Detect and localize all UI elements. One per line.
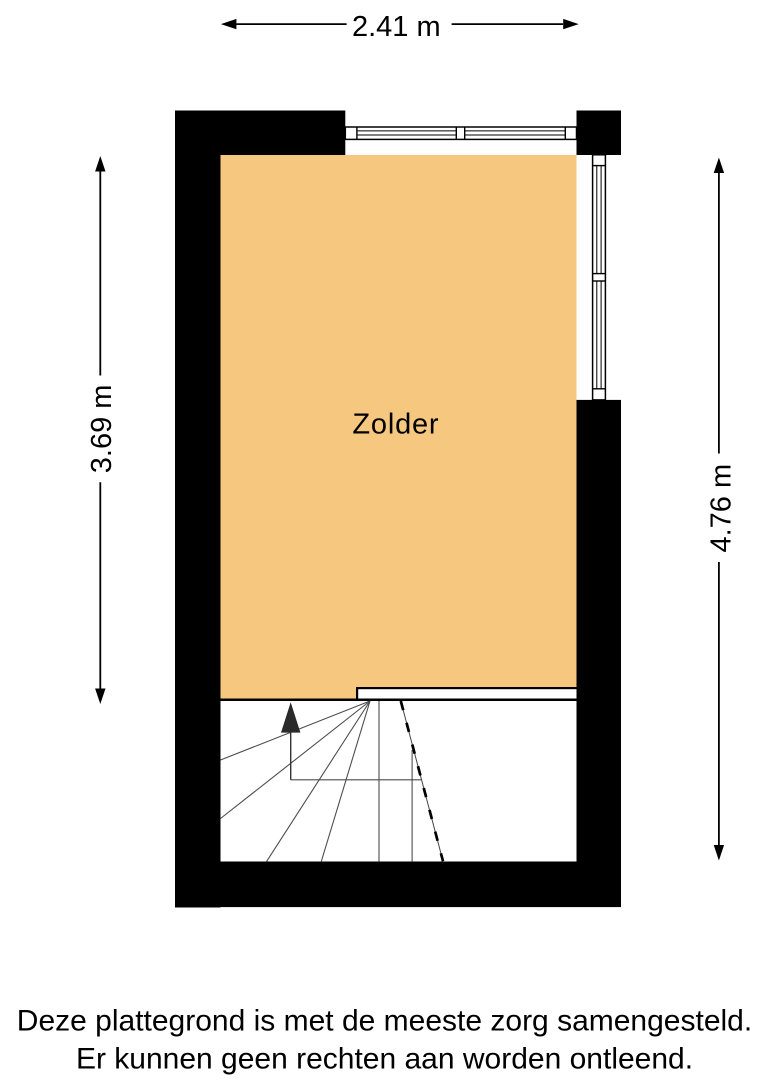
svg-text:Zolder: Zolder [352, 408, 439, 440]
svg-text:4.76 m: 4.76 m [705, 464, 737, 553]
svg-text:Deze plattegrond is met de mee: Deze plattegrond is met de meeste zorg s… [17, 1005, 752, 1038]
svg-text:3.69 m: 3.69 m [86, 385, 118, 474]
svg-text:2.41 m: 2.41 m [352, 11, 441, 43]
svg-text:Er kunnen geen rechten aan wor: Er kunnen geen rechten aan worden ontlee… [76, 1043, 693, 1076]
